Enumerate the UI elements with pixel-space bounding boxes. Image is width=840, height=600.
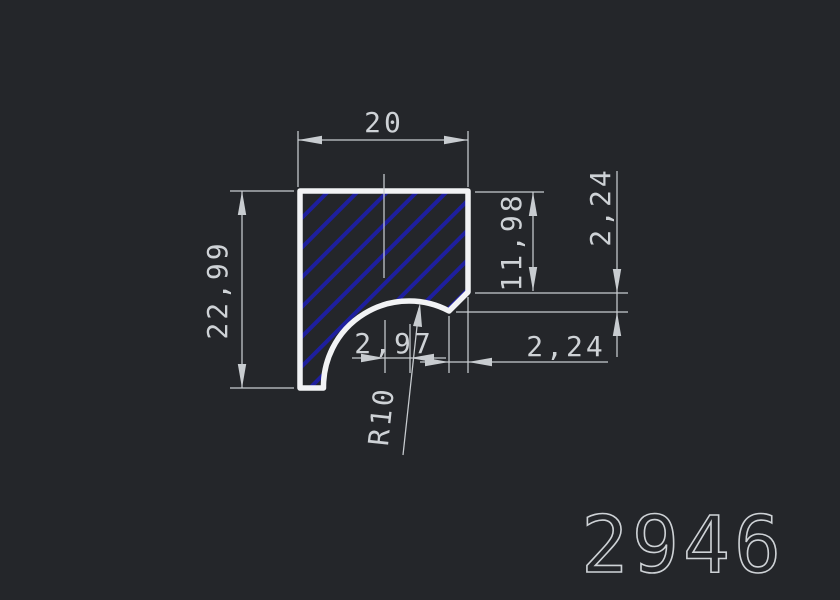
dim-left-height-label: 22,99: [201, 240, 234, 339]
dim-arrow-right: [444, 136, 468, 144]
dim-right-depth: 11,98: [475, 192, 544, 292]
drawing-number: 2946: [581, 501, 785, 591]
dim-right-step-vertical: 2,24: [456, 167, 628, 357]
dim-arrow-left: [298, 136, 322, 144]
cad-viewport: 20 22,99 11,98 2,24: [0, 0, 840, 600]
dim-right-step-vertical-label: 2,24: [584, 167, 617, 246]
dim-top-width: 20: [298, 106, 468, 187]
dim-arrow-left: [468, 358, 492, 366]
dim-arrow-up: [529, 192, 537, 216]
dim-arc-offset: 2,97: [352, 320, 446, 373]
dim-arc-offset-label: 2,97: [354, 327, 433, 360]
dim-radius: R10: [362, 303, 422, 455]
dim-arrow-down: [238, 364, 246, 388]
dim-arrow-radius: [413, 303, 422, 327]
dim-arrow-right: [425, 358, 449, 366]
dim-right-depth-label: 11,98: [495, 192, 528, 291]
dim-arrow-up: [238, 191, 246, 215]
dim-radius-label: R10: [362, 385, 401, 448]
dim-arrow-up: [613, 312, 621, 336]
dim-arrow-down: [529, 267, 537, 291]
drawing-canvas: 20 22,99 11,98 2,24: [0, 0, 840, 600]
dim-step-horizontal-label: 2,24: [526, 330, 605, 363]
dim-arrow-down: [613, 269, 621, 293]
dim-left-height: 22,99: [201, 191, 294, 388]
dim-top-width-label: 20: [364, 106, 404, 139]
